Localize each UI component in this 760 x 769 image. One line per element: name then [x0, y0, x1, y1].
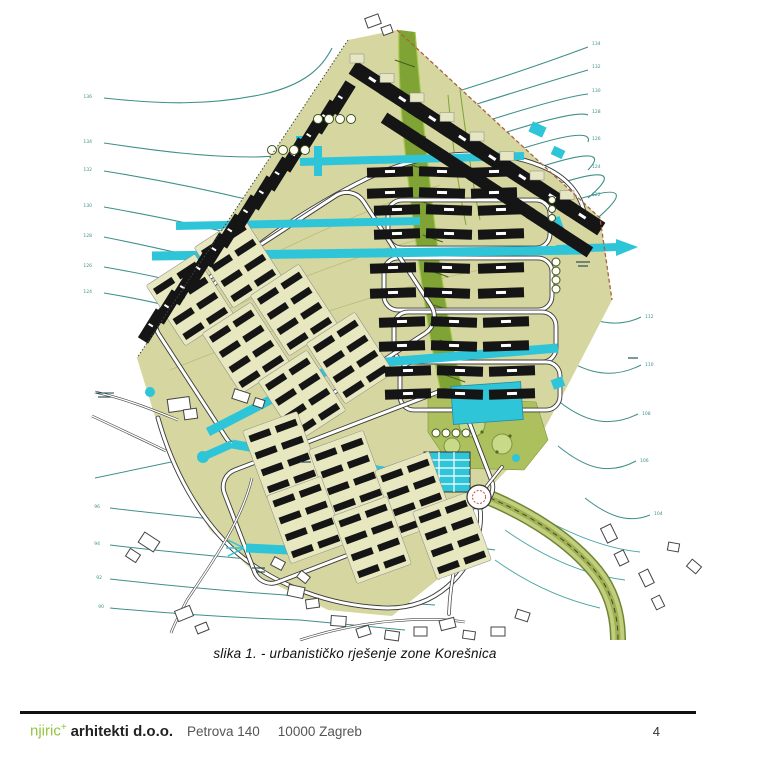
contour-labels: 136134132130128126124: [83, 94, 92, 295]
svg-text:132: 132: [83, 167, 92, 173]
contour-labels: 96949290: [94, 504, 104, 610]
svg-text:130: 130: [83, 203, 92, 209]
svg-text:112: 112: [645, 314, 654, 320]
company-name: arhitekti d.o.o.: [71, 723, 174, 740]
svg-text:90: 90: [98, 604, 104, 610]
document-page: 1361341321301281261241341321301281261241…: [0, 0, 760, 769]
address-street: Petrova 140: [187, 724, 260, 739]
roundabout: [467, 485, 491, 509]
page-number: 4: [653, 724, 660, 739]
svg-text:110: 110: [645, 362, 654, 368]
svg-text:136: 136: [83, 94, 92, 100]
footer-rule: [20, 711, 696, 714]
svg-text:130: 130: [592, 88, 601, 94]
figure-caption: slika 1. - urbanističko rješenje zone Ko…: [0, 646, 710, 661]
svg-text:124: 124: [592, 164, 601, 170]
svg-text:104: 104: [654, 511, 663, 517]
contour-labels: 112110108106104: [640, 314, 663, 517]
footer: njiric+ arhitekti d.o.o. Petrova 1401000…: [30, 722, 730, 740]
svg-text:128: 128: [592, 109, 601, 115]
svg-text:128: 128: [83, 233, 92, 239]
svg-text:108: 108: [642, 411, 651, 417]
address: Petrova 14010000 Zagreb: [187, 724, 362, 739]
svg-text:132: 132: [592, 64, 601, 70]
contour-labels: 134132130128126124122120: [592, 41, 601, 226]
svg-text:126: 126: [83, 263, 92, 269]
svg-text:106: 106: [640, 458, 649, 464]
brand-plus: +: [61, 722, 67, 733]
site-plan-map: 1361341321301281261241341321301281261241…: [0, 0, 760, 645]
svg-text:122: 122: [592, 192, 601, 198]
green-corridor-road: [490, 498, 618, 640]
svg-text:126: 126: [592, 136, 601, 142]
svg-text:92: 92: [96, 575, 102, 581]
svg-text:124: 124: [83, 289, 92, 295]
svg-text:134: 134: [83, 139, 92, 145]
svg-text:94: 94: [94, 541, 100, 547]
svg-text:134: 134: [592, 41, 601, 47]
figure-map: 1361341321301281261241341321301281261241…: [0, 0, 760, 645]
brand-name: njiric: [30, 723, 61, 740]
svg-text:96: 96: [94, 504, 100, 510]
address-city: 10000 Zagreb: [278, 724, 362, 739]
